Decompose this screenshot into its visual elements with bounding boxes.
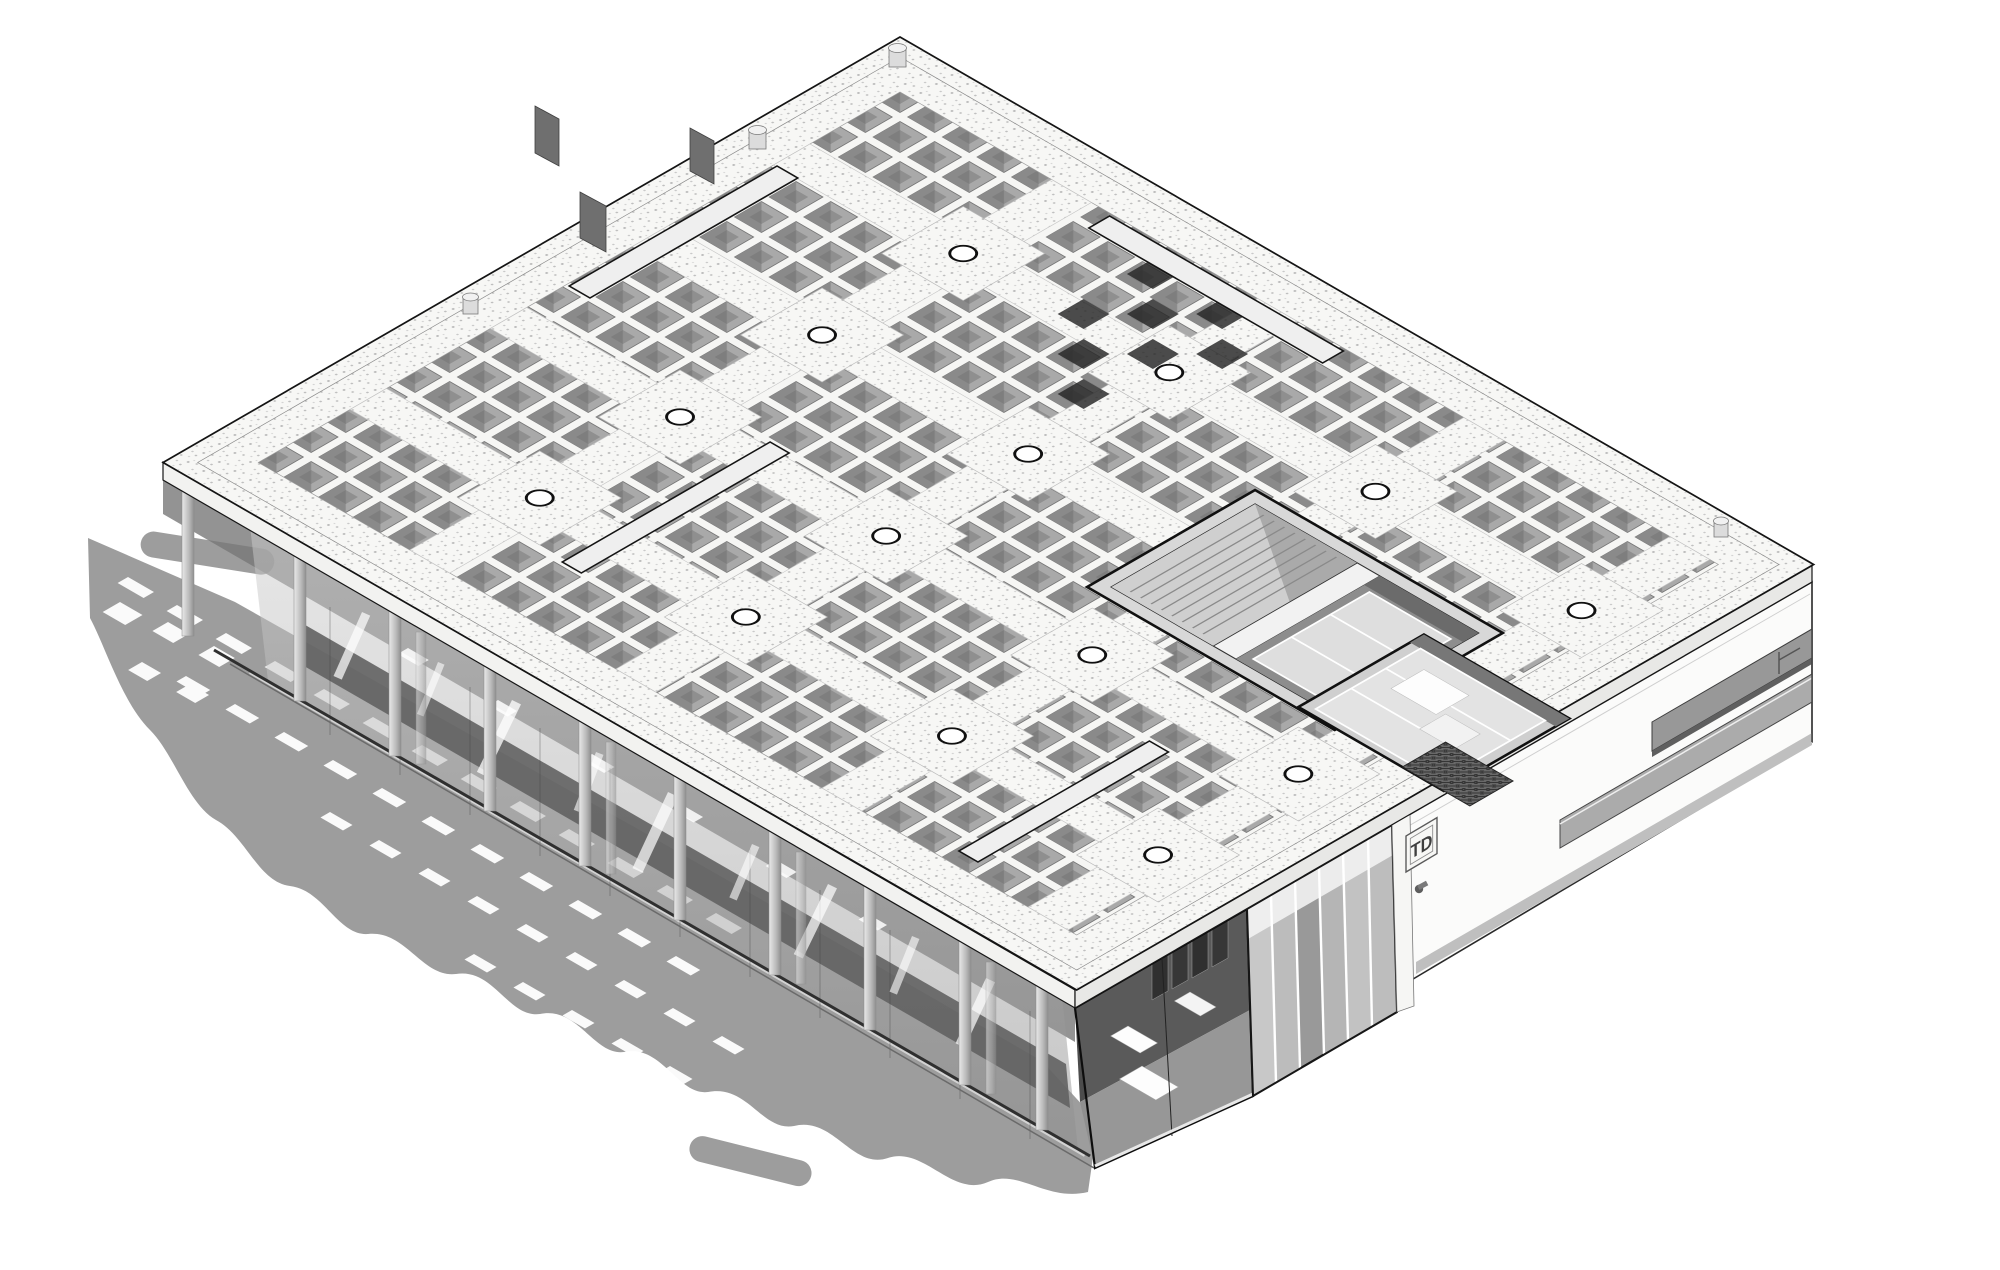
vent-stub — [1714, 517, 1729, 537]
building-rendering-canvas: TD — [0, 0, 2000, 1270]
vent-stub — [749, 126, 767, 150]
column — [579, 720, 591, 866]
column — [864, 884, 876, 1030]
shadow-arm — [687, 1133, 815, 1188]
column — [294, 555, 306, 701]
column-inner — [796, 852, 806, 984]
vent-stub — [463, 293, 479, 314]
column — [1036, 984, 1048, 1130]
column — [182, 490, 194, 636]
column — [674, 774, 686, 920]
vent-stub — [889, 44, 907, 68]
column — [769, 829, 781, 975]
column-inner — [606, 742, 616, 874]
column — [484, 665, 496, 811]
column-inner — [986, 962, 996, 1094]
column — [959, 939, 971, 1085]
column-inner — [416, 632, 426, 764]
axonometric-building-drawing: TD — [0, 0, 2000, 1270]
parapet-fin — [535, 106, 559, 166]
column — [389, 610, 401, 756]
